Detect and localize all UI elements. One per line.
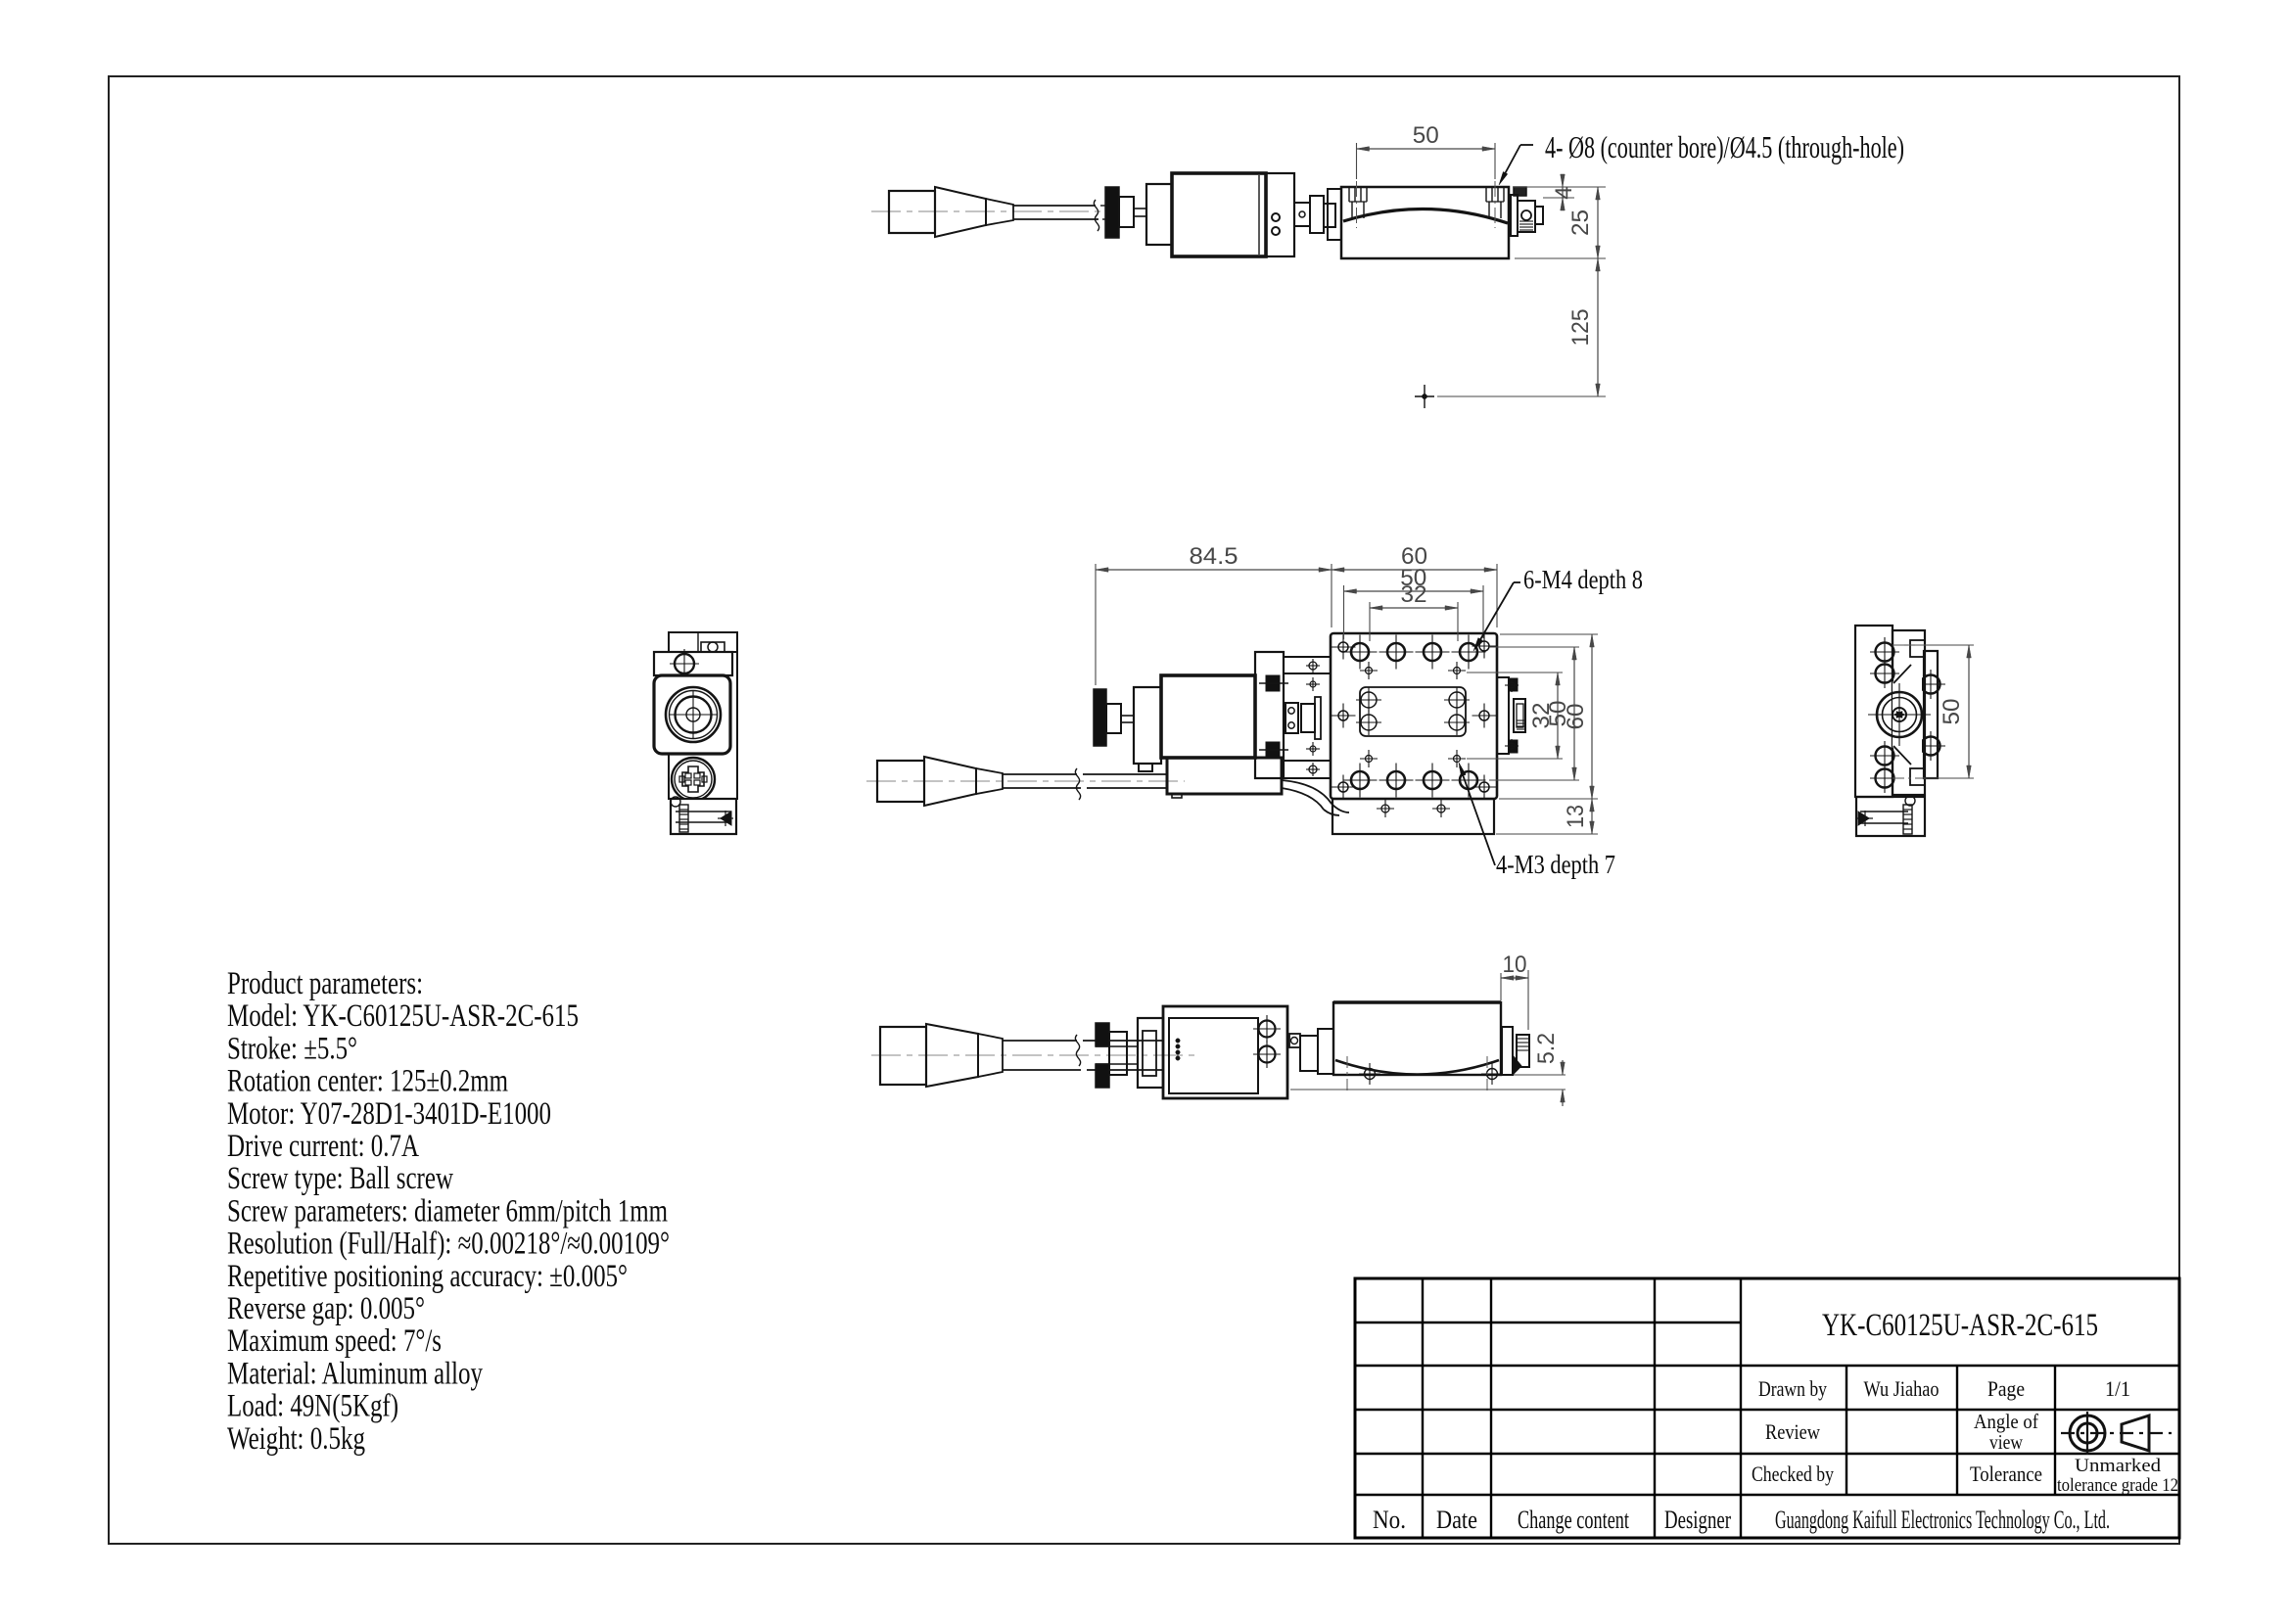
svg-text:Change content: Change content [1518,1506,1630,1534]
svg-text:No.: No. [1373,1506,1406,1534]
svg-text:Designer: Designer [1664,1506,1731,1534]
svg-text:Motor: Y07-28D1-3401D-E1000: Motor: Y07-28D1-3401D-E1000 [227,1096,551,1132]
svg-text:Drive current: 0.7A: Drive current: 0.7A [227,1129,419,1164]
svg-text:Repetitive positioning accurac: Repetitive positioning accuracy: ±0.005° [227,1259,628,1294]
svg-text:1/1: 1/1 [2105,1376,2130,1401]
svg-text:Resolution (Full/Half): ≈0.002: Resolution (Full/Half): ≈0.00218°/≈0.001… [227,1227,670,1262]
svg-text:Date: Date [1436,1506,1477,1534]
svg-text:Maximum speed: 7°/s: Maximum speed: 7°/s [227,1323,442,1359]
svg-text:Model: YK-C60125U-ASR-2C-615: Model: YK-C60125U-ASR-2C-615 [227,998,579,1034]
svg-text:tolerance grade 12: tolerance grade 12 [2057,1475,2178,1496]
svg-text:Tolerance: Tolerance [1970,1462,2042,1486]
svg-text:Screw type: Ball screw: Screw type: Ball screw [227,1161,453,1196]
svg-text:50: 50 [1939,699,1965,725]
svg-text:25: 25 [1567,209,1594,236]
svg-text:Drawn by: Drawn by [1758,1376,1827,1401]
svg-text:Screw parameters: diameter 6mm: Screw parameters: diameter 6mm/pitch 1mm [227,1193,668,1229]
svg-text:6-M4 depth 8: 6-M4 depth 8 [1523,565,1643,594]
svg-text:Review: Review [1765,1419,1820,1444]
svg-text:Material: Aluminum alloy: Material: Aluminum alloy [227,1356,483,1391]
svg-text:5.2: 5.2 [1533,1033,1560,1064]
svg-text:Rotation center: 125±0.2mm: Rotation center: 125±0.2mm [227,1064,508,1099]
svg-text:125: 125 [1567,309,1594,347]
svg-text:Guangdong Kaifull Electronics: Guangdong Kaifull Electronics Technology… [1775,1506,2110,1534]
svg-text:4: 4 [1551,186,1577,199]
svg-text:Wu Jiahao: Wu Jiahao [1864,1376,1939,1401]
svg-text:Unmarked: Unmarked [2075,1456,2162,1476]
svg-text:Stroke: ±5.5°: Stroke: ±5.5° [227,1031,357,1066]
svg-text:Product parameters:: Product parameters: [227,966,423,1001]
svg-text:Page: Page [1987,1376,2025,1401]
svg-text:YK-C60125U-ASR-2C-615: YK-C60125U-ASR-2C-615 [1822,1308,2098,1343]
svg-text:32: 32 [1401,581,1427,608]
svg-text:Checked by: Checked by [1752,1462,1834,1486]
svg-text:13: 13 [1563,805,1589,828]
svg-text:Load: 49N(5Kgf): Load: 49N(5Kgf) [227,1389,398,1424]
svg-text:60: 60 [1563,704,1589,730]
svg-text:84.5: 84.5 [1190,543,1238,570]
svg-text:Reverse gap: 0.005°: Reverse gap: 0.005° [227,1291,425,1326]
svg-text:view: view [1989,1430,2024,1454]
svg-text:10: 10 [1503,951,1527,978]
svg-text:Weight: 0.5kg: Weight: 0.5kg [227,1421,365,1457]
svg-text:4- Ø8 (counter bore)/Ø4.5 (thr: 4- Ø8 (counter bore)/Ø4.5 (through-hole) [1545,129,1904,164]
svg-text:4-M3 depth 7: 4-M3 depth 7 [1496,850,1615,879]
svg-text:50: 50 [1413,122,1439,149]
